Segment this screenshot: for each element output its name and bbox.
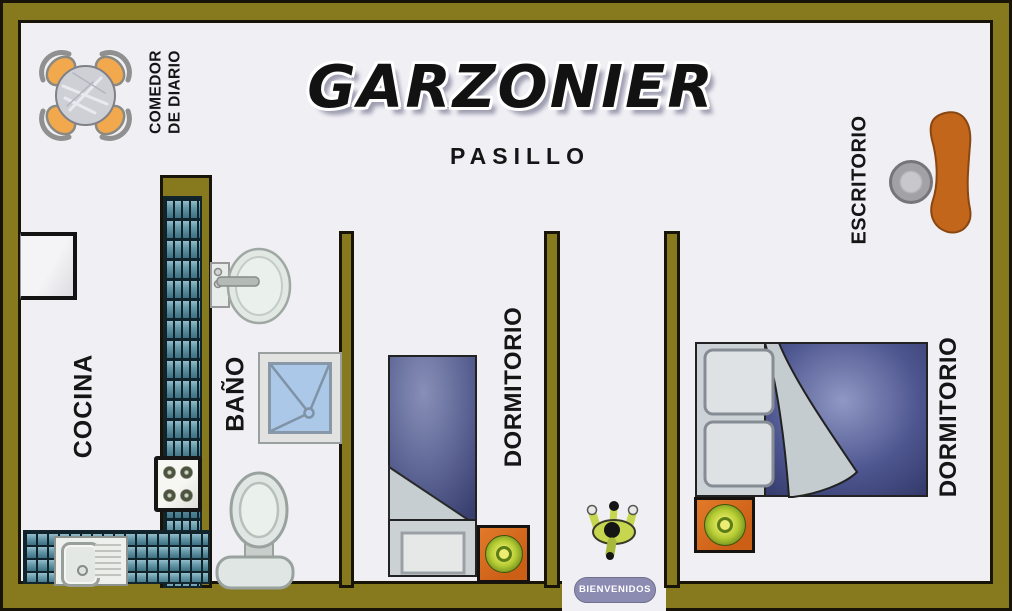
- nightstand: [694, 497, 755, 553]
- bathroom-sink: [209, 247, 297, 329]
- room-label-dormitorio2: DORMITORIO: [935, 337, 963, 498]
- foot-cushion: [402, 533, 464, 573]
- page-title: GARZONIER: [296, 52, 726, 121]
- room-label-escritorio: ESCRITORIO: [849, 115, 872, 244]
- burner-icon: [163, 466, 176, 479]
- pillow: [705, 422, 773, 486]
- kitchen-sink: [54, 536, 128, 586]
- shower: [258, 352, 342, 444]
- hand: [629, 506, 638, 515]
- burner-icon: [163, 489, 176, 502]
- lamp: [485, 535, 523, 573]
- shower-drain: [305, 409, 314, 418]
- welcome-mat: BIENVENIDOS: [574, 577, 656, 603]
- stove: [154, 456, 202, 512]
- floor-plan: GARZONIER PASILLO COMEDOR DE DIARIO COCI…: [0, 0, 1012, 611]
- person-figure: [586, 500, 642, 560]
- hand: [588, 506, 597, 515]
- room-label-bano: BAÑO: [222, 356, 251, 432]
- single-bed: [388, 355, 477, 578]
- nightstand: [477, 525, 530, 583]
- faucet: [217, 277, 259, 286]
- toilet-seat: [240, 483, 278, 537]
- hallway-label: PASILLO: [430, 143, 610, 170]
- wall-bedroom2: [664, 231, 680, 588]
- desk-top: [931, 112, 971, 232]
- toilet-tank: [217, 557, 293, 588]
- lamp: [704, 504, 746, 546]
- burner-icon: [180, 489, 193, 502]
- tap-knob: [215, 269, 222, 276]
- foot: [606, 552, 614, 560]
- fridge: [20, 232, 77, 300]
- head: [604, 522, 620, 538]
- drainboard: [95, 544, 121, 578]
- room-label-comedor: COMEDOR DE DIARIO: [147, 50, 186, 134]
- room-label-cocina: COCINA: [70, 354, 99, 459]
- toilet: [215, 470, 295, 590]
- room-label-dormitorio1: DORMITORIO: [500, 307, 528, 468]
- shower-pan: [268, 362, 332, 434]
- double-bed: [695, 342, 928, 498]
- desk: [915, 105, 985, 240]
- wall-bedroom1: [544, 231, 560, 588]
- dining-table-set: [25, 38, 145, 150]
- hand: [609, 501, 619, 511]
- burner-icon: [180, 466, 193, 479]
- pillow: [705, 350, 773, 414]
- sink-drain: [77, 565, 88, 576]
